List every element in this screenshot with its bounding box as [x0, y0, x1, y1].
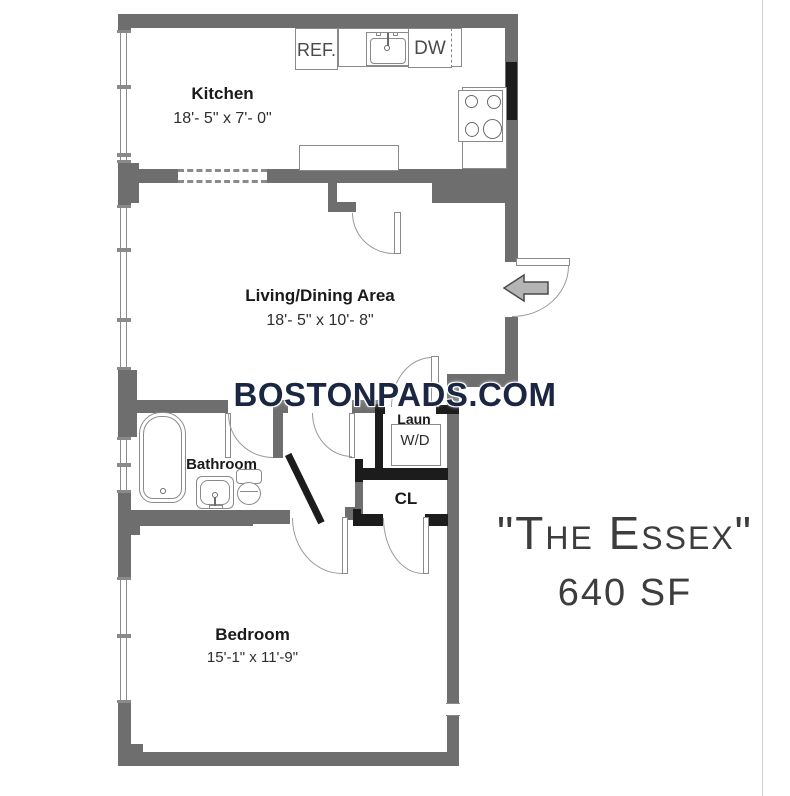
entry-arrow-icon — [502, 272, 550, 304]
window-cap — [117, 205, 131, 208]
bathtub-drain — [160, 488, 166, 494]
window-cap — [117, 577, 131, 580]
window-frame — [120, 205, 127, 370]
door-leaf-entry — [516, 258, 570, 266]
toilet-bowl — [237, 482, 261, 505]
wall-pier — [118, 744, 143, 766]
window-kitchen — [117, 30, 131, 163]
wall-diagonal — [285, 453, 325, 524]
wall-bedroom-north — [131, 510, 290, 524]
bath-sink-faucet-stem — [214, 497, 216, 506]
bathroom-label: Bathroom — [174, 456, 269, 473]
kitchen-peninsula — [299, 145, 399, 171]
stove-burner — [487, 95, 501, 109]
door-arc-bathroom — [228, 414, 273, 458]
closet-label: CL — [380, 489, 432, 509]
window-mullion — [117, 153, 131, 157]
window-frame — [120, 30, 127, 163]
door-leaf-closet — [423, 517, 429, 574]
window-cap — [117, 490, 131, 493]
sink-faucet-base — [384, 45, 390, 51]
sink-handle — [376, 32, 381, 36]
wall-bottom — [118, 752, 459, 766]
window-frame — [120, 577, 127, 703]
refrigerator-label: REF. — [295, 40, 338, 61]
plan-title: "The Essex" — [470, 506, 780, 560]
toilet-seat-line — [240, 491, 258, 492]
window-mullion — [117, 634, 131, 638]
wall-bath-east — [273, 413, 283, 458]
laundry-label: Laun — [388, 411, 440, 427]
window-cap — [117, 160, 131, 163]
window-cap — [117, 437, 131, 440]
kitchen-label: Kitchen — [150, 84, 295, 104]
washer-dryer-label: W/D — [390, 432, 440, 449]
dishwasher-label: DW — [408, 38, 452, 60]
window-bathroom — [117, 437, 131, 493]
door-leaf-vestibule — [394, 212, 401, 254]
stove-burner — [465, 95, 478, 108]
window-cap — [117, 367, 131, 370]
stove-burner — [465, 122, 479, 137]
door-arc-vestibule — [352, 213, 394, 254]
door-arc-hall — [312, 413, 352, 457]
window-bedroom — [117, 577, 131, 703]
wall-top — [118, 14, 518, 28]
window-mullion — [117, 318, 131, 322]
window-mullion — [117, 463, 131, 467]
page-edge-line — [762, 0, 763, 796]
wall-vestibule — [328, 202, 356, 212]
stove-burner — [483, 119, 502, 139]
window-mullion — [117, 85, 131, 89]
window-living — [117, 205, 131, 370]
plan-area: 640 SF — [470, 572, 780, 615]
kitchen-pass-through — [178, 169, 267, 183]
wall-right-mid — [505, 317, 518, 377]
wall-gap — [446, 703, 460, 716]
bedroom-label: Bedroom — [180, 625, 325, 645]
window-cap — [117, 30, 131, 33]
floorplan-canvas: REF. DW — [0, 0, 790, 796]
door-leaf-bedroom — [342, 517, 348, 574]
kitchen-dims: 18'- 5" x 7'- 0" — [150, 110, 295, 128]
wall-kitchen-south — [131, 169, 178, 183]
wall-laundry-south — [355, 468, 448, 480]
wall-cl-jamb — [353, 514, 383, 526]
window-mullion — [117, 248, 131, 252]
sink-handle — [393, 32, 398, 36]
watermark: BOSTONPADS.COM — [200, 376, 590, 414]
bedroom-dims: 15'-1" x 11'-9" — [180, 649, 325, 666]
bath-sink-tap-detail — [209, 505, 223, 509]
living-dims: 18'- 5" x 10'- 8" — [235, 312, 405, 330]
wall-laundry-west — [375, 412, 383, 470]
window-kitchen-right — [506, 62, 517, 120]
door-arc-bedroom — [292, 518, 342, 574]
window-cap — [117, 700, 131, 703]
door-arc-closet — [383, 518, 423, 574]
wall-vestibule-right — [432, 181, 507, 203]
living-label: Living/Dining Area — [235, 286, 405, 306]
